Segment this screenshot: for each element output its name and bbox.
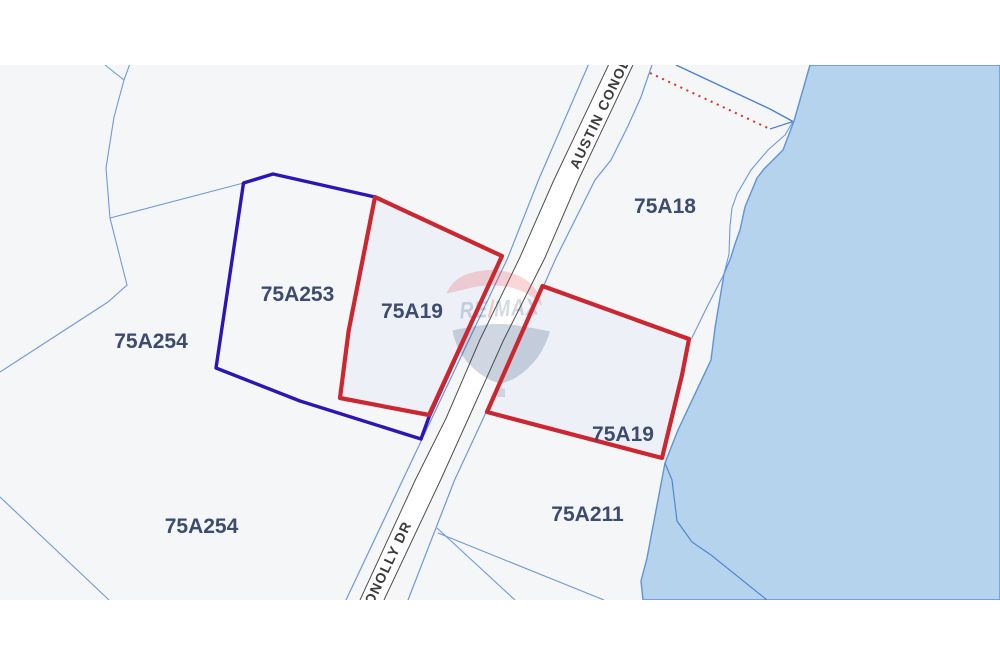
svg-text:75A19: 75A19 [592,423,654,446]
svg-text:75A19: 75A19 [381,300,443,323]
svg-text:75A253: 75A253 [261,283,335,306]
svg-text:75A211: 75A211 [551,503,624,526]
svg-text:75A18: 75A18 [634,195,696,218]
svg-text:75A254: 75A254 [114,330,188,353]
svg-text:75A254: 75A254 [165,515,239,538]
